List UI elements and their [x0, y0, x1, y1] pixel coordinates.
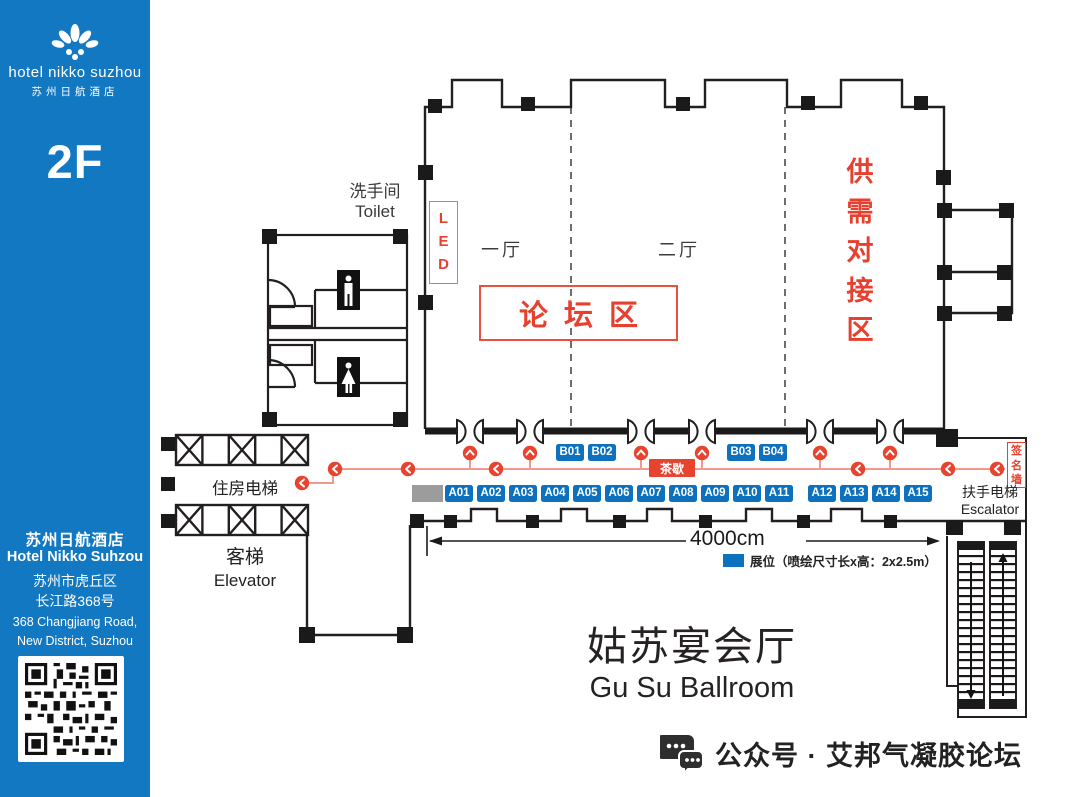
led-screen: LED — [429, 201, 458, 284]
booth-row-b-left: B01B02 — [556, 444, 616, 461]
booth-label: A09 — [701, 485, 729, 502]
address-line: 长江路368号 — [0, 591, 150, 611]
supply-zone-char: 区 — [845, 311, 875, 351]
guest-elevator-cn: 客梯 — [180, 546, 310, 570]
floor-label: 2F — [0, 134, 150, 189]
forum-zone-label: 论坛区 — [503, 292, 654, 334]
supply-zone-char: 需 — [845, 193, 875, 233]
restroom-icons — [337, 270, 360, 397]
address-en: 368 Changjiang Road,New District, Suzhou — [0, 613, 150, 651]
address-line: 苏州市虎丘区 — [0, 571, 150, 591]
elevator-bank — [176, 435, 413, 635]
booth-row-a-right: A12A13A14A15 — [808, 485, 932, 502]
hall1-label: 一厅 — [481, 236, 523, 262]
booth-label: A04 — [541, 485, 569, 502]
toilet-label: 洗手间 Toilet — [338, 182, 412, 222]
booth-label: B03 — [727, 444, 755, 461]
wechat-account-text: 公众号 · 艾邦气凝胶论坛 — [715, 734, 1022, 773]
supply-zone-char: 接 — [845, 272, 875, 312]
qr-pattern-icon — [25, 663, 117, 755]
legend-booth-swatch — [723, 554, 744, 567]
toilet-label-en: Toilet — [338, 202, 412, 222]
ballroom-title: 姑苏宴会厅 Gu Su Ballroom — [540, 624, 844, 706]
booth-label: A05 — [573, 485, 601, 502]
room-elevator-label: 住房电梯 — [180, 475, 310, 499]
qr-code — [18, 656, 124, 762]
signature-wall: 签名墙 — [1007, 442, 1026, 488]
booth-label: A10 — [733, 485, 761, 502]
address-line: New District, Suzhou — [0, 632, 150, 651]
booth-label: A13 — [840, 485, 868, 502]
booth-label: B01 — [556, 444, 584, 461]
escalator-label: 扶手电梯 Escalator — [950, 484, 1030, 517]
reserved-booth-block — [412, 485, 443, 502]
led-letter: E — [430, 230, 457, 253]
booth-row-b-right: B03B04 — [727, 444, 787, 461]
booth-row-a-left: A01A02A03A04A05A06A07A08A09A10A11 — [445, 485, 793, 502]
booth-label: A14 — [872, 485, 900, 502]
dimension-label: 4000cm — [690, 527, 765, 551]
forum-zone: 论坛区 — [479, 285, 678, 341]
escalator-cn: 扶手电梯 — [950, 484, 1030, 501]
signature-wall-char: 名 — [1008, 459, 1025, 474]
brand-name-cn: 苏州日航酒店 — [0, 84, 150, 99]
led-letter: L — [430, 207, 457, 230]
booth-label: A15 — [904, 485, 932, 502]
floor-plan-page: hotel nikko suzhou 苏州日航酒店 2F 苏州日航酒店 Hote… — [0, 0, 1080, 797]
guest-elevator-en: Elevator — [180, 570, 310, 592]
booth-label: A06 — [605, 485, 633, 502]
corridor-south-wall — [410, 509, 1026, 521]
supply-demand-zone: 供需对接区 — [845, 153, 875, 351]
booth-label: A03 — [509, 485, 537, 502]
escalator-en: Escalator — [950, 501, 1030, 518]
wechat-icon — [660, 733, 706, 773]
hotel-logo-icon — [45, 22, 105, 62]
booth-label: A11 — [765, 485, 793, 502]
booth-label: A02 — [477, 485, 505, 502]
booth-label: B04 — [759, 444, 787, 461]
address-line: 368 Changjiang Road, — [0, 613, 150, 632]
booth-label: B02 — [588, 444, 616, 461]
wechat-footer: 公众号 · 艾邦气凝胶论坛 — [660, 733, 1022, 773]
ballroom-title-cn: 姑苏宴会厅 — [540, 624, 844, 670]
supply-zone-char: 供 — [845, 153, 875, 193]
booth-label: A07 — [637, 485, 665, 502]
hotel-name-cn: 苏州日航酒店 — [0, 528, 150, 550]
sidebar: hotel nikko suzhou 苏州日航酒店 2F 苏州日航酒店 Hote… — [0, 0, 150, 797]
hall2-label: 二厅 — [658, 236, 700, 262]
supply-zone-char: 对 — [845, 232, 875, 272]
booth-label: A12 — [808, 485, 836, 502]
brand-name-en: hotel nikko suzhou — [0, 64, 150, 81]
hotel-name-en: Hotel Nikko Suhzou — [0, 549, 150, 565]
booth-label: A01 — [445, 485, 473, 502]
address-cn: 苏州市虎丘区长江路368号 — [0, 571, 150, 611]
hall-dividers — [571, 107, 785, 429]
led-letter: D — [430, 253, 457, 276]
guest-elevator-label: 客梯 Elevator — [180, 546, 310, 592]
booth-label: A08 — [669, 485, 697, 502]
signature-wall-char: 签 — [1008, 444, 1025, 459]
tea-break-badge: 茶歇 — [649, 459, 695, 477]
toilet-label-cn: 洗手间 — [338, 182, 412, 202]
ballroom-title-en: Gu Su Ballroom — [540, 670, 844, 706]
legend-label: 展位（喷绘尺寸长x高：2x2.5m） — [750, 551, 937, 570]
